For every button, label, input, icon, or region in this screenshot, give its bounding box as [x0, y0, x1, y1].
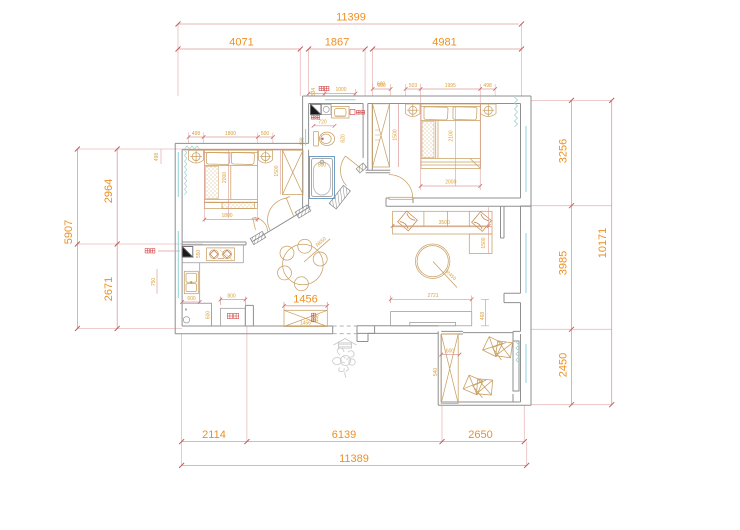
svg-text:2721: 2721	[427, 293, 438, 299]
svg-text:1800: 1800	[221, 213, 232, 219]
svg-text:2671: 2671	[103, 277, 115, 301]
svg-text:468: 468	[480, 312, 486, 321]
svg-text:500: 500	[261, 131, 270, 137]
svg-text:4071: 4071	[229, 37, 253, 49]
svg-text:1456: 1456	[300, 321, 311, 327]
svg-text:6139: 6139	[332, 429, 356, 441]
svg-text:2114: 2114	[202, 429, 226, 441]
svg-text:2000: 2000	[222, 172, 228, 183]
svg-text:1500: 1500	[274, 165, 280, 176]
svg-text:1000: 1000	[335, 87, 346, 93]
svg-text:600: 600	[206, 311, 212, 320]
svg-text:620: 620	[341, 134, 347, 143]
svg-text:800: 800	[227, 294, 236, 300]
svg-text:3985: 3985	[558, 251, 570, 275]
svg-text:2650: 2650	[468, 429, 492, 441]
svg-text:11399: 11399	[336, 12, 366, 24]
svg-text:1867: 1867	[325, 37, 349, 49]
svg-text:600: 600	[187, 296, 196, 302]
svg-text:2964: 2964	[103, 179, 115, 203]
svg-text:1800: 1800	[225, 131, 236, 137]
svg-text:4981: 4981	[432, 37, 456, 49]
svg-text:3500: 3500	[439, 220, 450, 226]
svg-text:446: 446	[315, 314, 321, 323]
svg-text:1500: 1500	[481, 237, 487, 248]
svg-text:600: 600	[446, 349, 455, 355]
svg-text:5907: 5907	[63, 220, 75, 244]
svg-text:550: 550	[196, 250, 202, 259]
svg-text:11389: 11389	[339, 453, 369, 465]
svg-text:2450: 2450	[558, 353, 570, 377]
svg-text:534: 534	[311, 88, 317, 97]
svg-text:498: 498	[154, 153, 160, 162]
svg-text:600: 600	[377, 82, 386, 88]
svg-text:800: 800	[318, 163, 327, 169]
svg-text:1456: 1456	[293, 294, 317, 306]
svg-text:1995: 1995	[445, 83, 456, 89]
svg-text:750: 750	[151, 278, 157, 287]
svg-text:2000: 2000	[445, 180, 456, 186]
svg-text:3256: 3256	[558, 139, 570, 163]
svg-text:498: 498	[192, 131, 201, 137]
svg-text:540: 540	[433, 368, 439, 377]
svg-text:503: 503	[409, 83, 418, 89]
svg-text:2100: 2100	[448, 130, 454, 141]
svg-text:10171: 10171	[597, 228, 609, 259]
svg-text:1500: 1500	[393, 129, 399, 140]
svg-text:498: 498	[483, 83, 492, 89]
svg-text:720: 720	[318, 120, 327, 126]
